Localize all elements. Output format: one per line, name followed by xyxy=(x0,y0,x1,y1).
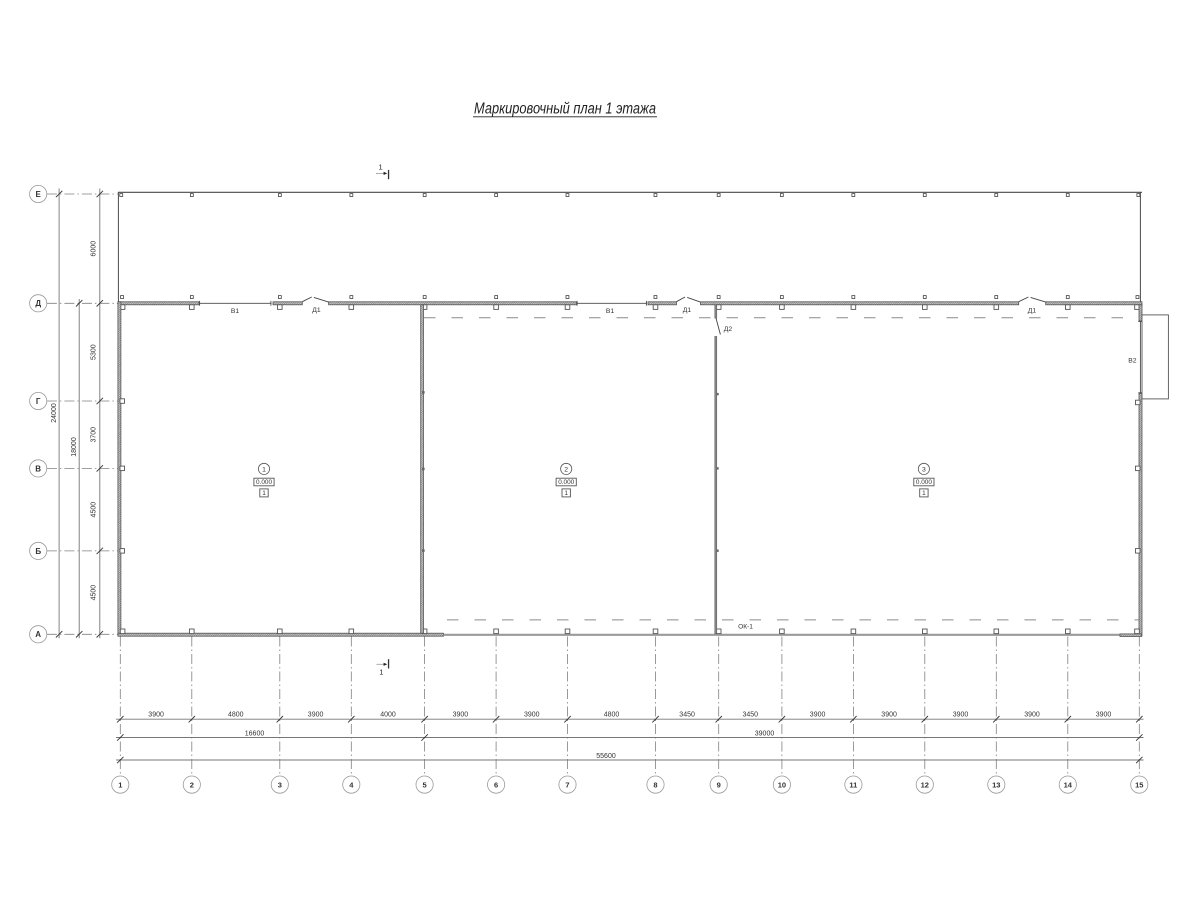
svg-text:3900: 3900 xyxy=(953,711,969,718)
svg-text:3900: 3900 xyxy=(148,711,164,718)
svg-text:1: 1 xyxy=(262,490,266,497)
svg-text:1: 1 xyxy=(262,466,266,473)
svg-text:3: 3 xyxy=(922,466,926,473)
svg-text:11: 11 xyxy=(849,780,857,789)
svg-text:В2: В2 xyxy=(1128,358,1137,365)
svg-text:3900: 3900 xyxy=(524,711,540,718)
svg-text:39000: 39000 xyxy=(755,731,775,738)
svg-text:Д1: Д1 xyxy=(312,307,321,314)
svg-text:Д1: Д1 xyxy=(683,307,692,314)
svg-text:4000: 4000 xyxy=(380,711,396,718)
svg-text:Маркировочный план 1 этажа: Маркировочный план 1 этажа xyxy=(474,101,656,118)
svg-text:3900: 3900 xyxy=(453,711,469,718)
svg-text:0.000: 0.000 xyxy=(256,479,272,486)
svg-text:6000: 6000 xyxy=(91,241,98,257)
svg-text:55600: 55600 xyxy=(596,753,616,760)
svg-text:Д: Д xyxy=(35,299,41,308)
svg-text:1: 1 xyxy=(118,780,122,789)
svg-text:15: 15 xyxy=(1135,780,1143,789)
svg-text:24000: 24000 xyxy=(51,403,58,423)
svg-text:14: 14 xyxy=(1064,780,1073,789)
svg-text:В1: В1 xyxy=(231,308,240,315)
svg-text:Д2: Д2 xyxy=(724,326,733,333)
svg-text:Д1: Д1 xyxy=(1028,307,1037,314)
svg-text:В: В xyxy=(35,464,41,473)
svg-text:1: 1 xyxy=(379,162,383,171)
svg-text:8: 8 xyxy=(653,780,657,789)
svg-text:6: 6 xyxy=(494,780,498,789)
svg-text:А: А xyxy=(35,630,41,639)
svg-text:18000: 18000 xyxy=(71,437,78,457)
svg-text:3900: 3900 xyxy=(308,711,324,718)
svg-text:4800: 4800 xyxy=(604,711,620,718)
svg-text:ОК-1: ОК-1 xyxy=(738,624,753,631)
svg-text:16600: 16600 xyxy=(245,731,265,738)
svg-text:4800: 4800 xyxy=(228,711,244,718)
svg-text:4500: 4500 xyxy=(90,502,97,518)
svg-text:3900: 3900 xyxy=(1096,711,1112,718)
svg-text:Б: Б xyxy=(35,547,41,556)
svg-text:Е: Е xyxy=(36,190,42,199)
svg-text:3900: 3900 xyxy=(881,711,897,718)
svg-text:10: 10 xyxy=(778,780,786,789)
svg-text:3700: 3700 xyxy=(91,427,98,443)
svg-text:5300: 5300 xyxy=(90,344,97,360)
svg-text:0.000: 0.000 xyxy=(916,479,932,486)
svg-text:3: 3 xyxy=(278,780,282,789)
svg-text:2: 2 xyxy=(564,466,568,473)
svg-text:13: 13 xyxy=(992,780,1000,789)
svg-text:3450: 3450 xyxy=(679,711,695,718)
svg-text:2: 2 xyxy=(190,780,194,789)
svg-text:0.000: 0.000 xyxy=(558,479,574,486)
svg-text:5: 5 xyxy=(423,780,427,789)
svg-text:12: 12 xyxy=(921,780,929,789)
svg-text:7: 7 xyxy=(565,780,569,789)
svg-text:Г: Г xyxy=(36,397,41,406)
svg-text:4500: 4500 xyxy=(91,585,98,601)
svg-text:1: 1 xyxy=(922,490,926,497)
svg-text:1: 1 xyxy=(379,667,383,676)
svg-text:3450: 3450 xyxy=(743,711,759,718)
svg-text:3900: 3900 xyxy=(810,711,826,718)
svg-text:3900: 3900 xyxy=(1024,711,1040,718)
svg-text:В1: В1 xyxy=(606,308,615,315)
svg-text:1: 1 xyxy=(564,490,568,497)
svg-text:9: 9 xyxy=(717,780,721,789)
